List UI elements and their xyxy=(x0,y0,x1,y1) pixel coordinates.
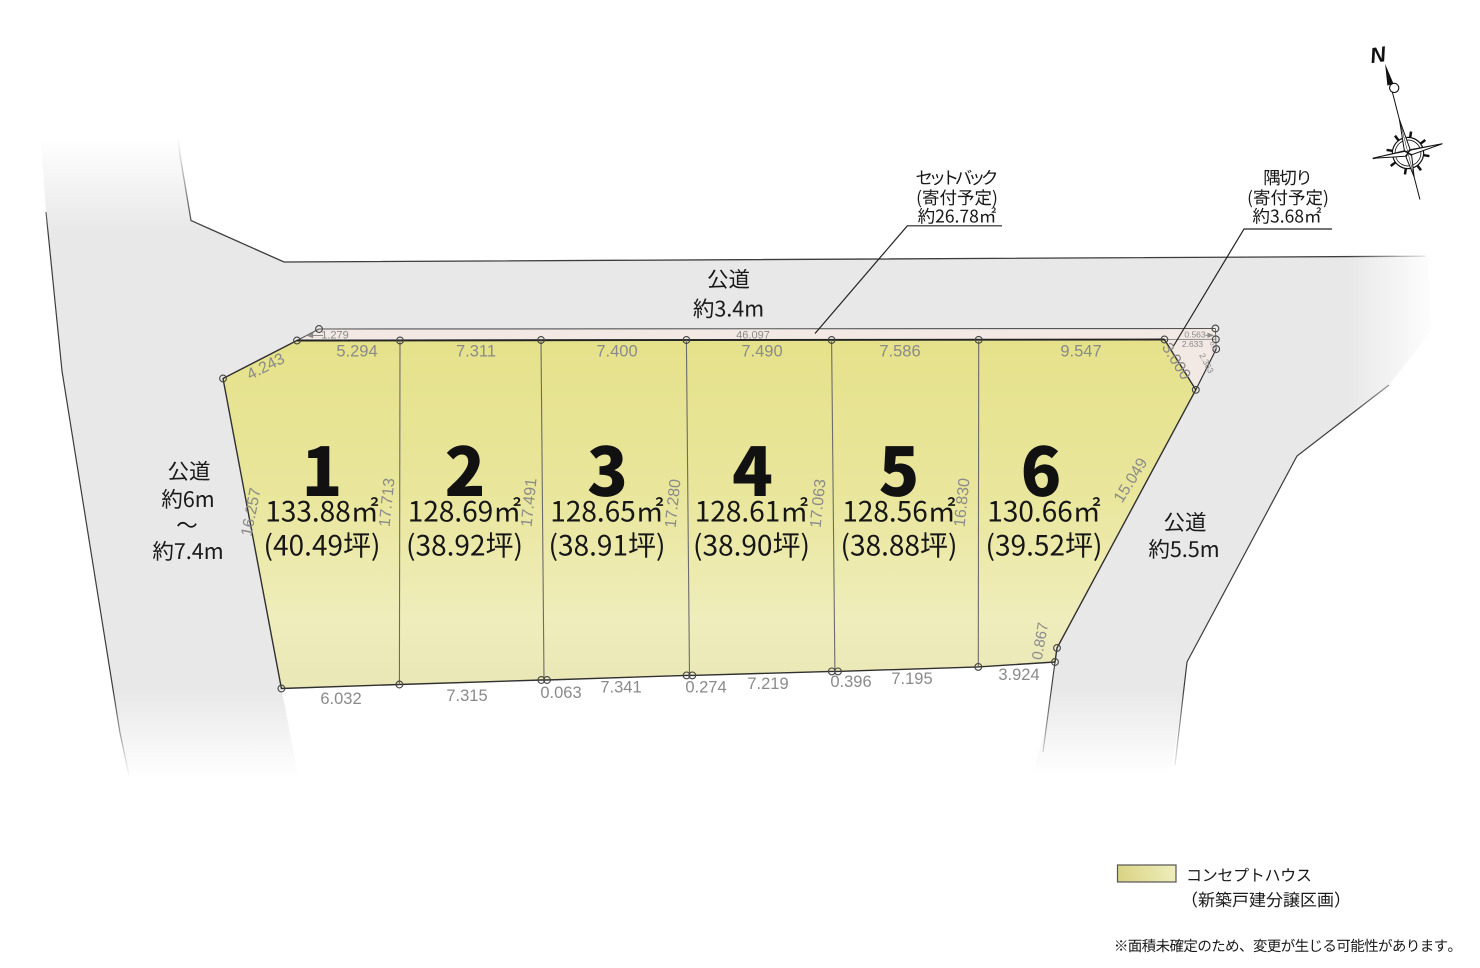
svg-text:7.586: 7.586 xyxy=(879,343,920,361)
svg-text:7.400: 7.400 xyxy=(596,343,637,361)
svg-text:7.219: 7.219 xyxy=(747,675,788,693)
svg-text:1.279: 1.279 xyxy=(321,330,349,342)
svg-text:7.315: 7.315 xyxy=(446,687,487,705)
svg-text:7.195: 7.195 xyxy=(891,670,932,688)
svg-text:5.294: 5.294 xyxy=(336,343,377,361)
svg-text:6.032: 6.032 xyxy=(320,690,361,708)
svg-text:3.924: 3.924 xyxy=(998,666,1039,684)
svg-text:9.547: 9.547 xyxy=(1060,343,1101,361)
svg-text:7.311: 7.311 xyxy=(456,343,496,361)
svg-text:0.063: 0.063 xyxy=(540,684,581,702)
svg-text:0.563: 0.563 xyxy=(1184,330,1206,340)
svg-text:7.341: 7.341 xyxy=(600,679,641,697)
svg-text:0.274: 0.274 xyxy=(685,679,726,697)
svg-text:0.396: 0.396 xyxy=(830,673,871,691)
svg-text:46.097: 46.097 xyxy=(736,330,770,342)
svg-text:2.633: 2.633 xyxy=(1182,339,1204,349)
svg-text:N: N xyxy=(1369,42,1388,68)
svg-text:7.490: 7.490 xyxy=(741,343,782,361)
